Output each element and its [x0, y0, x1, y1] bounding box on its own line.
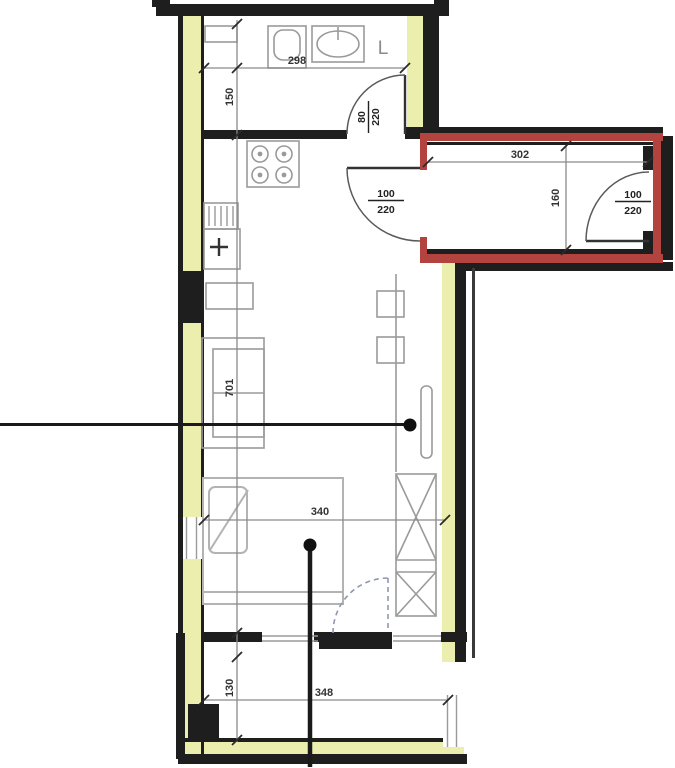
- hall-top-wall: [420, 127, 663, 134]
- doors: [333, 75, 649, 633]
- hall-red-left-lower: [420, 237, 427, 263]
- bath-right-wall: [423, 14, 439, 134]
- burner-1-dot: [258, 152, 263, 157]
- right-wall-insulation: [442, 260, 457, 662]
- entry-door-size-num: 100: [624, 189, 642, 201]
- bath-bottom-wall: [204, 130, 347, 139]
- hall-red-bottom: [420, 254, 663, 263]
- bedroom-width-label: 340: [311, 506, 329, 518]
- hall-width-label: 302: [511, 149, 529, 161]
- living-radiator: [421, 386, 432, 458]
- burner-3-dot: [258, 173, 263, 178]
- kitchen-sink-unit: [204, 229, 240, 269]
- balcony-depth-label: 130: [224, 679, 236, 697]
- balcony-door-block: [319, 632, 392, 649]
- top-wall: [156, 4, 449, 16]
- bath-depth-label: 150: [224, 88, 236, 106]
- kitchen-fixtures: [204, 141, 299, 309]
- bath-door-size-num: 80: [356, 111, 368, 123]
- hall-red-right: [653, 133, 661, 263]
- bed: [203, 478, 343, 604]
- balcony-door-swing: [333, 578, 388, 633]
- hall-red-top: [420, 133, 663, 141]
- bath-width-label: 298: [288, 55, 306, 67]
- floor-plan: L: [0, 0, 675, 768]
- hall-depth-label: 160: [550, 189, 562, 207]
- balcony-unit: [188, 704, 219, 742]
- entry-outer-wall: [661, 136, 673, 260]
- entry-door-size-label: 100 220: [615, 189, 651, 217]
- balcony-items: [188, 704, 219, 742]
- bedroom-bottom-wall-right: [441, 632, 467, 642]
- bedroom-bottom-wall-left: [204, 632, 258, 642]
- burner-4-dot: [282, 173, 287, 178]
- living-leader-dot: [404, 419, 417, 432]
- balcony-width-label: 348: [315, 687, 333, 699]
- room-length-label: 701: [224, 379, 236, 397]
- hall-bottom-inner-line: [427, 249, 656, 254]
- bath-door-size-label: 80 220: [356, 101, 382, 133]
- chair-1: [377, 291, 404, 317]
- balcony-wall-insulation: [184, 742, 464, 756]
- hall-door-size-num: 100: [377, 188, 395, 200]
- chair-2: [377, 337, 404, 363]
- window1-jamb-left: [255, 632, 262, 642]
- right-outer-line: [472, 268, 475, 658]
- right-wall: [455, 260, 466, 662]
- kitchen-cabinet: [206, 283, 253, 309]
- balcony-inner-line: [184, 738, 462, 742]
- hall-door-size-den: 220: [377, 204, 395, 216]
- bedroom-leader-dot: [304, 539, 317, 552]
- hall-door-size-label: 100 220: [368, 188, 404, 216]
- bedroom-furniture: [203, 474, 436, 616]
- bath-right-wall-insulation: [407, 16, 424, 138]
- hall-bottom-outer-wall: [456, 262, 673, 271]
- left-wall-pier: [183, 271, 203, 323]
- left-wall-insulation: [183, 14, 203, 759]
- left-wall-balcony: [176, 633, 185, 759]
- bath-door-size-den: 220: [370, 108, 382, 126]
- entry-door-size-den: 220: [624, 205, 642, 217]
- burner-2-dot: [282, 152, 287, 157]
- balcony-side-opening: [443, 695, 468, 747]
- balcony-bottom-wall: [180, 754, 467, 764]
- floor-plan-drawing: L: [0, 0, 675, 768]
- fixture-letter: L: [378, 38, 389, 59]
- hall-top-inner-line: [427, 142, 653, 145]
- dimension-texts: 298 302 340 348 150 701 130 160 100 220 …: [224, 55, 651, 699]
